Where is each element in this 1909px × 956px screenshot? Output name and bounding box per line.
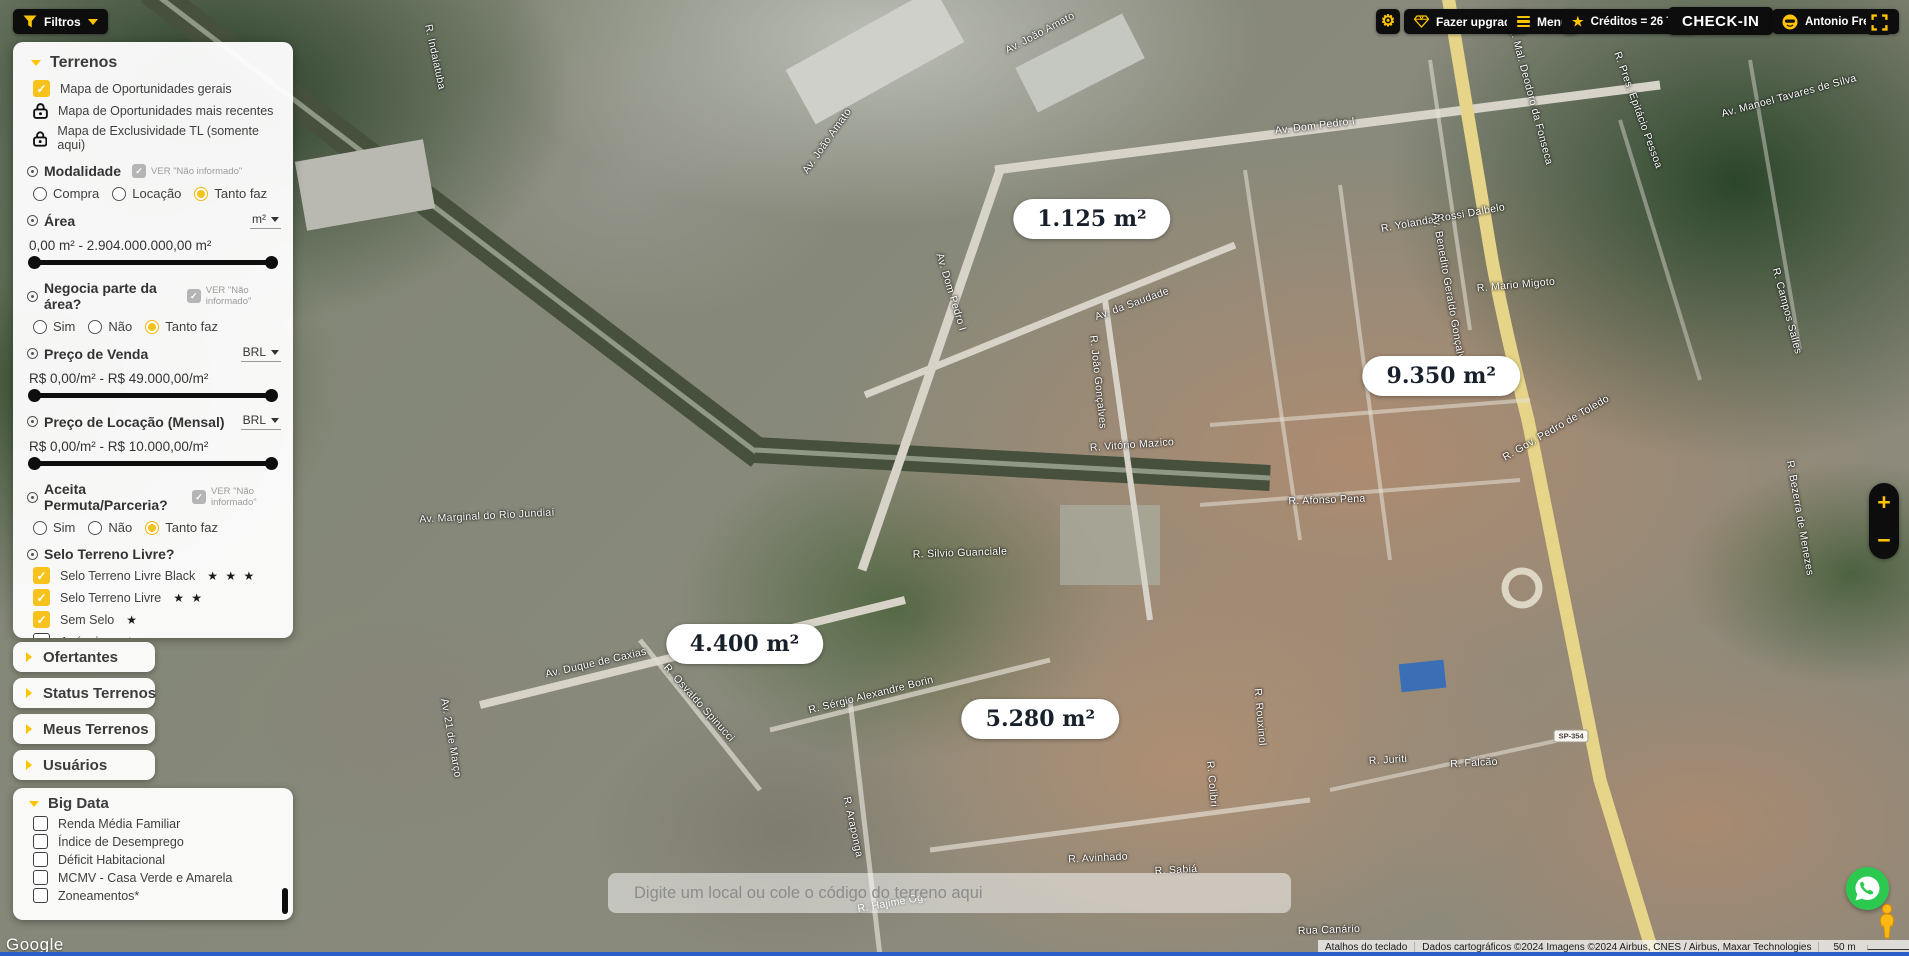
upgrade-label: Fazer upgrade <box>1436 15 1518 29</box>
expand-icon <box>26 760 32 770</box>
radio-icon[interactable] <box>112 187 126 201</box>
big-data-header[interactable]: Big Data <box>29 795 281 812</box>
info-icon[interactable] <box>27 291 38 302</box>
expand-icon <box>26 652 32 662</box>
layer-label: Mapa de Exclusividade TL (somente aqui) <box>57 124 281 152</box>
preco-locacao-title: Preço de Locação (Mensal) <box>44 414 225 430</box>
bigdata-zoneamentos[interactable]: Zoneamentos* <box>33 888 281 903</box>
checkbox-checked[interactable]: ✓ <box>33 611 50 628</box>
accordion-usuarios[interactable]: Usuários <box>13 750 155 780</box>
area-section: Área m² <box>27 212 281 229</box>
expand-icon <box>26 688 32 698</box>
accordion-meus-terrenos[interactable]: Meus Terrenos <box>13 714 155 744</box>
accordion-label: Usuários <box>43 757 107 774</box>
radio-sim[interactable]: Sim <box>33 319 75 334</box>
lock-icon <box>33 130 47 147</box>
bigdata-mcmv[interactable]: MCMV - Casa Verde e Amarela <box>33 870 281 885</box>
area-label-pill[interactable]: 4.400 m² <box>666 624 823 664</box>
big-data-panel: Big Data Renda Média Familiar Índice de … <box>13 788 293 920</box>
stars-three: ★ ★ ★ <box>207 569 256 583</box>
checkin-button[interactable]: CHECK-IN <box>1668 7 1773 35</box>
terrenos-title: Terrenos <box>50 54 117 72</box>
area-title: Área <box>44 213 75 229</box>
road-label: R. Juriti <box>1368 753 1407 767</box>
radio-compra[interactable]: Compra <box>33 186 99 201</box>
area-slider[interactable] <box>28 255 278 269</box>
radio-tanto-faz[interactable]: Tanto faz <box>145 319 218 334</box>
checkbox-unchecked[interactable] <box>33 834 48 849</box>
radio-icon[interactable] <box>33 521 47 535</box>
zoom-out-button[interactable]: − <box>1877 529 1890 552</box>
info-icon[interactable] <box>27 416 38 427</box>
big-data-title: Big Data <box>48 795 109 812</box>
radio-tanto-faz[interactable]: Tanto faz <box>194 186 267 201</box>
layer-oportunidades-gerais[interactable]: ✓ Mapa de Oportunidades gerais <box>33 80 281 97</box>
radio-icon-selected[interactable] <box>145 320 159 334</box>
preco-venda-range-value: R$ 0,00/m² - R$ 49.000,00/m² <box>29 371 281 386</box>
preco-venda-section: Preço de Venda BRL <box>27 345 281 362</box>
lock-icon <box>33 102 48 119</box>
accordion-ofertantes[interactable]: Ofertantes <box>13 642 155 672</box>
zoom-in-button[interactable]: + <box>1877 491 1890 514</box>
ver-nao-informado-toggle[interactable]: ✓ VER "Não informado" <box>187 285 281 307</box>
radio-nao[interactable]: Não <box>88 520 132 535</box>
checkbox-mini-checked[interactable]: ✓ <box>132 164 146 178</box>
info-icon[interactable] <box>27 348 38 359</box>
checkbox-mini-checked[interactable]: ✓ <box>187 289 201 303</box>
radio-tanto-faz[interactable]: Tanto faz <box>145 520 218 535</box>
anuncios-externos-option[interactable]: Anúncios externos <box>33 633 281 638</box>
slider-thumb-min[interactable] <box>28 256 41 269</box>
radio-icon[interactable] <box>33 187 47 201</box>
menu-icon <box>1517 16 1530 28</box>
fullscreen-button[interactable] <box>1866 9 1892 35</box>
area-unit-select[interactable]: m² <box>250 212 281 229</box>
layer-label: Mapa de Oportunidades gerais <box>60 82 232 96</box>
checkbox-mini-checked[interactable]: ✓ <box>192 490 206 504</box>
layer-oportunidades-recentes[interactable]: Mapa de Oportunidades mais recentes <box>33 102 281 119</box>
pegman-icon <box>1874 903 1900 939</box>
radio-icon-selected[interactable] <box>194 187 208 201</box>
layer-label: Mapa de Oportunidades mais recentes <box>58 104 273 118</box>
ver-label: VER "Não informado" <box>151 166 242 177</box>
selo-label: Selo Terreno Livre <box>60 591 161 605</box>
accordion-status-terrenos[interactable]: Status Terrenos <box>13 678 155 708</box>
accordion-label: Status Terrenos <box>43 685 156 702</box>
selo-livre-option[interactable]: ✓ Selo Terreno Livre ★ ★ <box>33 589 281 606</box>
filters-panel: Terrenos ✓ Mapa de Oportunidades gerais … <box>13 42 293 638</box>
radio-icon[interactable] <box>88 521 102 535</box>
info-icon[interactable] <box>27 215 38 226</box>
chevron-down-icon <box>88 19 98 25</box>
radio-icon[interactable] <box>33 320 47 334</box>
highway-shield: SP-354 <box>1554 730 1589 743</box>
area-label-pill[interactable]: 1.125 m² <box>1013 199 1170 239</box>
road-label: Rua Canário <box>1297 923 1360 937</box>
bigdata-deficit[interactable]: Déficit Habitacional <box>33 852 281 867</box>
avatar-icon <box>1782 14 1798 30</box>
stars-one: ★ <box>126 613 139 627</box>
checkbox-checked[interactable]: ✓ <box>33 567 50 584</box>
checkbox-unchecked[interactable] <box>33 870 48 885</box>
slider-thumb-min[interactable] <box>28 457 41 470</box>
radio-nao[interactable]: Não <box>88 319 132 334</box>
search-input[interactable] <box>634 884 1265 903</box>
diamond-icon <box>1414 15 1429 28</box>
info-icon[interactable] <box>27 492 38 503</box>
accordion-label: Meus Terrenos <box>43 721 149 738</box>
sem-selo-option[interactable]: ✓ Sem Selo ★ <box>33 611 281 628</box>
accordion-label: Ofertantes <box>43 649 118 666</box>
ver-label: VER "Não informado" <box>206 285 281 307</box>
filtros-label: Filtros <box>44 15 81 29</box>
modalidade-section: Modalidade ✓ VER "Não informado" <box>27 163 281 179</box>
scale-bar <box>1867 945 1909 950</box>
collapse-icon <box>29 801 39 807</box>
checkbox-unchecked[interactable] <box>33 633 50 638</box>
bottom-edge-strip <box>0 952 1909 956</box>
map-data-credits: Dados cartográficos ©2024 Imagens ©2024 … <box>1414 942 1818 953</box>
negocia-title: Negocia parte da área? <box>44 280 176 312</box>
filter-funnel-icon <box>23 15 37 28</box>
chevron-down-icon <box>271 350 279 355</box>
checkin-label: CHECK-IN <box>1682 13 1759 30</box>
checkbox-checked[interactable]: ✓ <box>33 80 50 97</box>
ver-nao-informado-toggle[interactable]: ✓ VER "Não informado" <box>192 486 281 508</box>
preco-locacao-section: Preço de Locação (Mensal) BRL <box>27 413 281 430</box>
permuta-options: Sim Não Tanto faz <box>33 520 281 535</box>
layer-exclusividade[interactable]: Mapa de Exclusividade TL (somente aqui) <box>33 124 281 152</box>
gear-icon: ⚙ <box>1381 14 1395 30</box>
preco-venda-title: Preço de Venda <box>44 346 148 362</box>
zoom-control: + − <box>1869 483 1899 559</box>
selo-black-option[interactable]: ✓ Selo Terreno Livre Black ★ ★ ★ <box>33 567 281 584</box>
venda-currency-select[interactable]: BRL <box>241 345 281 362</box>
selo-title: Selo Terreno Livre? <box>44 546 174 562</box>
radio-locacao[interactable]: Locação <box>112 186 181 201</box>
scrollbar-thumb[interactable] <box>282 888 288 914</box>
area-range-value: 0,00 m² - 2.904.000.000,00 m² <box>29 238 281 253</box>
permuta-title: Aceita Permuta/Parceria? <box>44 481 181 513</box>
app-root: Av. João AmatoAv. João AmatoR. Indaiatub… <box>0 0 1909 956</box>
bigdata-renda[interactable]: Renda Média Familiar <box>33 816 281 831</box>
filtros-button[interactable]: Filtros <box>13 9 108 34</box>
preco-venda-slider[interactable] <box>28 388 278 402</box>
chevron-down-icon <box>271 418 279 423</box>
locacao-currency-select[interactable]: BRL <box>241 413 281 430</box>
radio-sim[interactable]: Sim <box>33 520 75 535</box>
area-label-pill[interactable]: 9.350 m² <box>1363 356 1520 396</box>
negocia-section: Negocia parte da área? ✓ VER "Não inform… <box>27 280 281 312</box>
slider-thumb-max[interactable] <box>265 256 278 269</box>
star-icon: ★ <box>1572 15 1584 28</box>
permuta-section: Aceita Permuta/Parceria? ✓ VER "Não info… <box>27 481 281 513</box>
ver-label: VER "Não informado" <box>211 486 281 508</box>
radio-icon-selected[interactable] <box>145 521 159 535</box>
info-icon[interactable] <box>27 549 38 560</box>
slider-thumb-min[interactable] <box>28 389 41 402</box>
radio-icon[interactable] <box>88 320 102 334</box>
selo-section: Selo Terreno Livre? <box>27 546 281 562</box>
settings-button[interactable]: ⚙ <box>1376 9 1400 34</box>
stars-two: ★ ★ <box>173 591 204 605</box>
checkbox-unchecked[interactable] <box>33 816 48 831</box>
selo-label: Sem Selo <box>60 613 114 627</box>
map-search-bar[interactable] <box>608 873 1291 913</box>
selo-label: Selo Terreno Livre Black <box>60 569 195 583</box>
checkbox-unchecked[interactable] <box>33 888 48 903</box>
bigdata-desemprego[interactable]: Índice de Desemprego <box>33 834 281 849</box>
selo-label: Anúncios externos <box>60 635 163 639</box>
collapse-icon <box>31 60 41 66</box>
checkbox-checked[interactable]: ✓ <box>33 589 50 606</box>
pegman-streetview[interactable] <box>1874 903 1900 944</box>
slider-thumb-max[interactable] <box>265 457 278 470</box>
negocia-options: Sim Não Tanto faz <box>33 319 281 334</box>
terrenos-section-header[interactable]: Terrenos <box>31 54 281 72</box>
keyboard-shortcuts-link[interactable]: Atalhos do teclado <box>1318 942 1414 953</box>
modalidade-options: Compra Locação Tanto faz <box>33 186 281 201</box>
road-label: R. Falcão <box>1450 756 1498 770</box>
preco-locacao-slider[interactable] <box>28 456 278 470</box>
area-label-pill[interactable]: 5.280 m² <box>962 699 1119 739</box>
chevron-down-icon <box>271 217 279 222</box>
slider-thumb-max[interactable] <box>265 389 278 402</box>
fullscreen-icon <box>1871 14 1888 31</box>
info-icon[interactable] <box>27 166 38 177</box>
expand-icon <box>26 724 32 734</box>
ver-nao-informado-toggle[interactable]: ✓ VER "Não informado" <box>132 164 242 178</box>
modalidade-title: Modalidade <box>44 163 121 179</box>
checkbox-unchecked[interactable] <box>33 852 48 867</box>
preco-locacao-range-value: R$ 0,00/m² - R$ 10.000,00/m² <box>29 439 281 454</box>
